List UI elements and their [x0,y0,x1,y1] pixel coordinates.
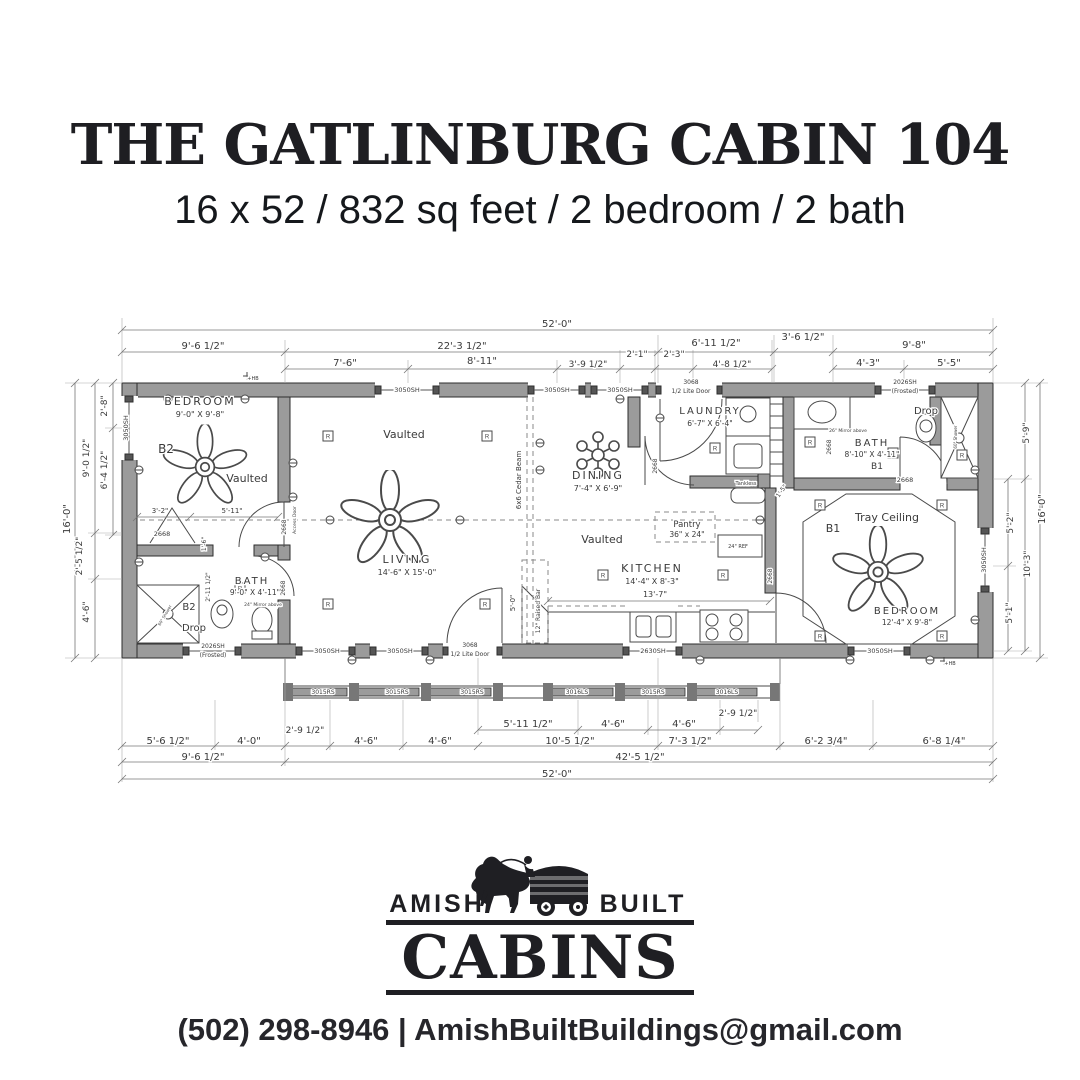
plan-label: 3050SH [387,647,413,655]
brand-logo: AMISH BUILT CABINS [386,856,694,995]
plan-label: 5'-1" [1005,602,1015,623]
recessed-light-icon: R [815,631,825,641]
plan-label: +HB [247,376,259,382]
plan-label: 2'-9 1/2" [719,709,758,719]
svg-text:R: R [940,504,945,510]
outlet-icon [426,656,434,664]
plan-label: 26" Mirror above [829,428,867,434]
plan-label: 3'-6 1/2" [782,332,825,343]
plan-label: 7'-4" X 6'-9" [574,484,622,493]
plan-label: 9'-0" X 4'-11" [230,588,280,597]
plan-label: +HB [944,661,956,667]
plan-label: 5'-6 1/2" [147,736,190,747]
sink-b2-drain [217,605,227,615]
plan-label: Vaulted [226,472,268,485]
plan-label: 2'-5 1/2" [75,537,85,576]
plan-label: 16'-0" [62,504,73,534]
recessed-light-icon: R [815,500,825,510]
toilet-b1 [916,414,936,442]
recessed-light-icon: R [718,570,728,580]
plan-label: 52'-0" [542,769,572,780]
plan-label: 4'-3" [856,358,880,369]
plan-label: 1'-6" [201,537,208,551]
plan-label: 3'-2" [152,507,169,515]
plan-label: 4'-6" [672,719,696,730]
plan-label: Tray Ceiling [854,511,919,524]
outlet-icon [971,616,979,624]
outlet-icon [241,395,249,403]
plan-label: 2'-3" [663,350,684,360]
plan-label: BEDROOM [164,395,235,408]
outlet-icon [536,466,544,474]
plan-label: 5'-0" [509,595,517,612]
plan-label: 4'-6" [601,719,625,730]
plan-label: 3068 [462,642,477,649]
plan-label: BATH [855,438,890,449]
plan-label: 3050SH [544,386,570,394]
plan-label: 6'-2 3/4" [805,736,848,747]
outlet-icon [348,656,356,664]
plan-label: 7'-3 1/2" [669,736,712,747]
plan-label: 4'-8 1/2" [713,360,752,370]
plan-label: 3050SH [867,647,893,655]
recessed-light-icon: R [598,570,608,580]
ceiling-fan-icon [161,424,248,507]
plan-label: B2 [158,442,174,456]
brand-word-left: AMISH [389,890,485,918]
plan-label: 1/2 Lite Door [672,388,711,395]
svg-text:R: R [601,574,606,580]
plan-label: 3015RS [460,689,483,696]
recessed-light-icon: R [937,631,947,641]
brand-word-right: BUILT [600,890,687,918]
plan-label: Vaulted [383,428,425,441]
svg-text:R: R [326,435,331,441]
svg-text:R: R [483,603,488,609]
plan-label: 3015RS [311,689,334,696]
plan-label: KITCHEN [621,562,683,575]
wardrobe-shelves [770,404,783,476]
plan-label: Drop [914,406,938,417]
svg-text:R: R [960,454,965,460]
recessed-light-icon: R [957,450,967,460]
outlet-icon [926,656,934,664]
plan-label: 9'-6 1/2" [182,341,225,352]
plan-label: 2668 [281,519,288,534]
plan-label: BATH [235,576,270,587]
svg-text:R: R [721,574,726,580]
plan-label: 12" Raised Bar [535,588,542,633]
horse-wagon-icon [471,856,590,916]
plan-label: Vaulted [581,533,623,546]
ceiling-fan-icon [339,469,442,567]
plan-label: B1 [871,462,883,472]
plan-label: B1 [826,522,841,535]
plan-label: 3050SH [607,386,633,394]
plan-label: 2668 [280,580,287,595]
recessed-light-icon: R [482,431,492,441]
svg-text:R: R [940,635,945,641]
dimension-line [118,348,997,356]
plan-label: 3016LS [716,689,739,696]
plan-label: 52'-0" [542,319,572,330]
plan-label: 10'-3" [1023,550,1033,577]
plan-label: 2668 [767,568,774,583]
outlet-icon [289,493,297,501]
plan-label: 9'-6 1/2" [182,752,225,763]
plan-label: 5'-5" [937,358,961,369]
plan-label: 4'-6" [82,601,92,622]
plan-label: 2'-8" [100,395,110,416]
plan-label: 3'-9 1/2" [569,360,608,370]
plan-label: 2026SH [201,643,225,650]
dimension-line [1004,475,1012,655]
plan-label: 6'-4 1/2" [100,451,110,490]
vanity-b1 [794,397,850,429]
tankless-heater [731,488,765,503]
outlet-icon [261,553,269,561]
plan-label: LAUNDRY [679,406,741,417]
plan-label: 2630SH [640,647,666,655]
outlet-icon [289,459,297,467]
recessed-light-icon: R [937,500,947,510]
svg-text:R: R [326,603,331,609]
plan-label: 16'-0" [1037,494,1048,524]
dimension-line [829,365,997,373]
ceiling-fan-icon [831,525,925,615]
dimension-line [118,758,997,766]
svg-text:R: R [818,504,823,510]
plan-label: Drop [182,623,206,634]
dimension-line [1021,379,1029,655]
plan-label: Tankless [734,481,756,487]
plan-label: 13'-7" [643,590,667,599]
plan-label: 4'-0" [237,736,261,747]
outlet-icon [696,656,704,664]
plan-label: 2'-1" [626,350,647,360]
plan-label: 8'-11" [467,356,497,367]
shower-b1 [941,397,978,478]
outlet-icon [971,466,979,474]
plan-label: LIVING [383,553,432,566]
svg-text:R: R [808,441,813,447]
plan-label: 4'-6" [354,736,378,747]
recessed-light-icon: R [480,599,490,609]
plan-label: 22'-3 1/2" [437,341,486,352]
plan-label: 3015RS [385,689,408,696]
dimension-line [91,379,99,662]
plan-label: Pantry [673,520,700,530]
flyer-page: THE GATLINBURG CABIN 104 16 x 52 / 832 s… [0,0,1080,1080]
plan-label: 24" Mirror above [244,602,282,608]
plan-label: 3015RS [641,689,664,696]
outlet-icon [616,395,624,403]
brand-main-word: CABINS [401,923,678,993]
outlet-icon [456,516,464,524]
plan-label: 6'-8 1/4" [923,736,966,747]
plan-label: BEDROOM [874,606,940,617]
outlet-icon [326,516,334,524]
plan-label: 36" x 24" [669,530,704,539]
plan-label: 2668 [652,458,659,473]
plan-label: 9'-0" X 9'-8" [176,410,224,419]
plan-label: 24" REF [728,544,748,550]
plan-label: 3050SH [122,415,130,441]
dimension-line [109,379,117,539]
contact-line: (502) 298-8946 | AmishBuiltBuildings@gma… [0,1012,1080,1048]
plan-label: 2'-11 1/2" [205,572,212,602]
plan-label: 42'-5 1/2" [615,752,664,763]
outlet-icon [846,656,854,664]
plan-label: 3050SH [980,547,988,573]
svg-text:R: R [818,635,823,641]
recessed-light-icon: R [710,443,720,453]
plan-label: 2026SH [893,379,917,386]
plan-label: 14'-6" X 15'-0" [378,568,437,577]
toilet-b2 [252,607,272,639]
plan-label: 8'-10" X 4'-11" [845,450,900,459]
recessed-light-icon: R [323,599,333,609]
svg-text:R: R [485,435,490,441]
plan-label: 5'-9" [1022,422,1032,443]
plan-label: 1/2 Lite Door [451,651,490,658]
plan-label: 6x6 Cedar Beam [515,451,523,510]
recessed-light-icon: R [323,431,333,441]
plan-label: (Frosted) [200,652,227,659]
plan-label: 3068 [683,379,698,386]
plan-label: 3050SH [314,647,340,655]
plan-label: 5'-2" [1006,512,1016,533]
plan-label: Access Door [292,506,298,534]
outlet-icon [656,414,664,422]
outlet-icon [135,466,143,474]
svg-text:R: R [713,447,718,453]
plan-label: 6'-7" X 6'-4" [687,419,732,428]
plan-label: 10'-5 1/2" [545,736,594,747]
plan-label: 2'-9 1/2" [286,726,325,736]
outlet-icon [135,558,143,566]
floor-plan: AMISH BUILT CABINS RRRRRRRRRRRRRRR52 [0,0,1080,1080]
plan-label: 60" Shower [953,425,958,448]
recessed-light-icon: R [805,437,815,447]
plan-label: DINING [572,469,624,482]
outlet-icon [536,439,544,447]
plan-label: 5'-11 1/2" [503,719,552,730]
plan-label: 12'-4" X 9'-8" [882,618,932,627]
plan-label: 3016LS [566,689,589,696]
plan-label: 14'-4" X 8'-3" [625,577,679,586]
plan-label: 2668 [897,476,914,484]
plan-label: 7'-6" [333,358,357,369]
plan-label: 5'-11" [221,507,242,515]
plan-label: 4'-6" [428,736,452,747]
plan-label: 2668 [826,439,833,454]
plan-label: B2 [182,602,195,613]
plan-label: 9'-0 1/2" [82,439,92,478]
porch [283,658,780,701]
plan-label: 2668 [154,530,171,538]
plan-label: 6'-11 1/2" [691,338,740,349]
plan-label: (Frosted) [892,388,919,395]
plan-label: 9'-8" [902,340,926,351]
plan-label: 3050SH [394,386,420,394]
outlet-icon [756,516,764,524]
